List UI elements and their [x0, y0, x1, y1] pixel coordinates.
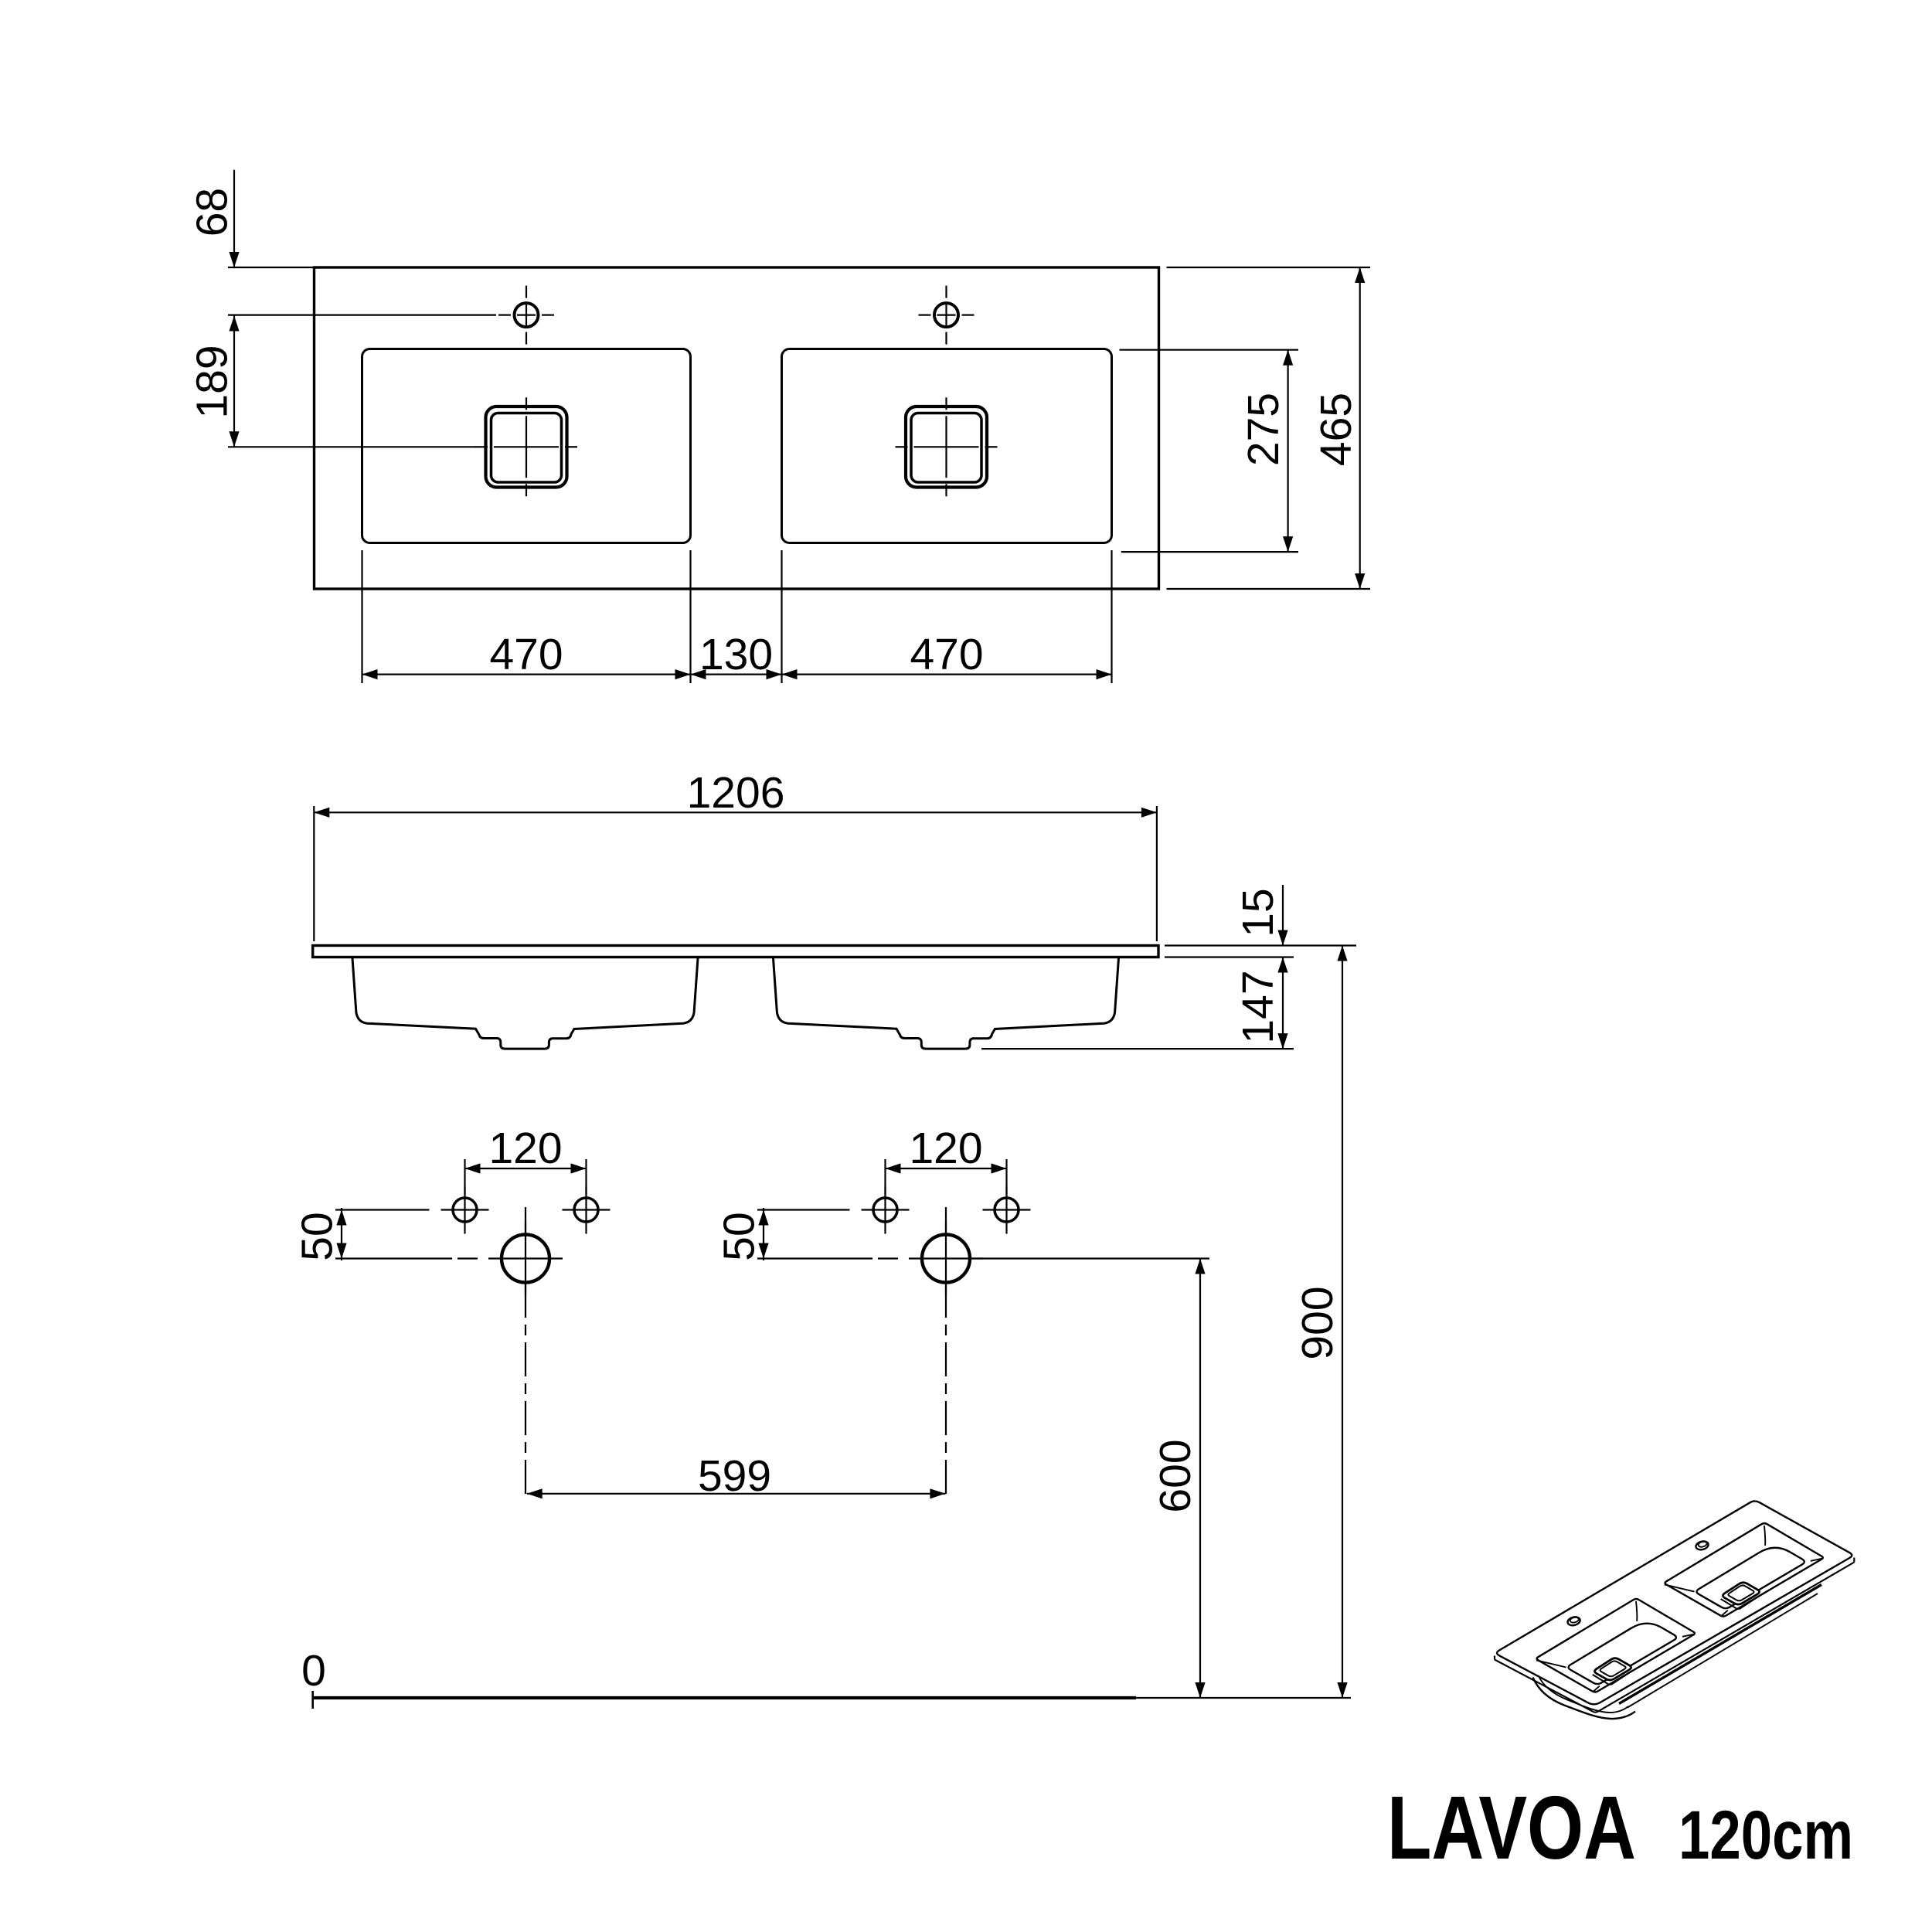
svg-text:0: 0: [301, 1646, 326, 1696]
svg-text:120: 120: [909, 1124, 982, 1173]
svg-text:130: 130: [699, 630, 773, 679]
svg-text:470: 470: [489, 630, 563, 679]
svg-text:15: 15: [1233, 888, 1283, 937]
svg-text:189: 189: [188, 345, 237, 418]
svg-text:599: 599: [698, 1451, 771, 1501]
svg-text:900: 900: [1293, 1286, 1342, 1359]
svg-text:465: 465: [1311, 393, 1361, 466]
svg-text:275: 275: [1239, 393, 1288, 466]
svg-text:120cm: 120cm: [1679, 1796, 1853, 1873]
svg-text:600: 600: [1151, 1439, 1200, 1512]
svg-text:1206: 1206: [687, 768, 785, 818]
svg-text:68: 68: [188, 188, 237, 236]
svg-text:50: 50: [715, 1212, 764, 1260]
svg-text:120: 120: [488, 1124, 562, 1173]
svg-text:LAVOA: LAVOA: [1387, 1777, 1636, 1878]
svg-text:147: 147: [1233, 970, 1283, 1043]
svg-text:470: 470: [910, 630, 983, 679]
svg-text:50: 50: [293, 1212, 342, 1260]
